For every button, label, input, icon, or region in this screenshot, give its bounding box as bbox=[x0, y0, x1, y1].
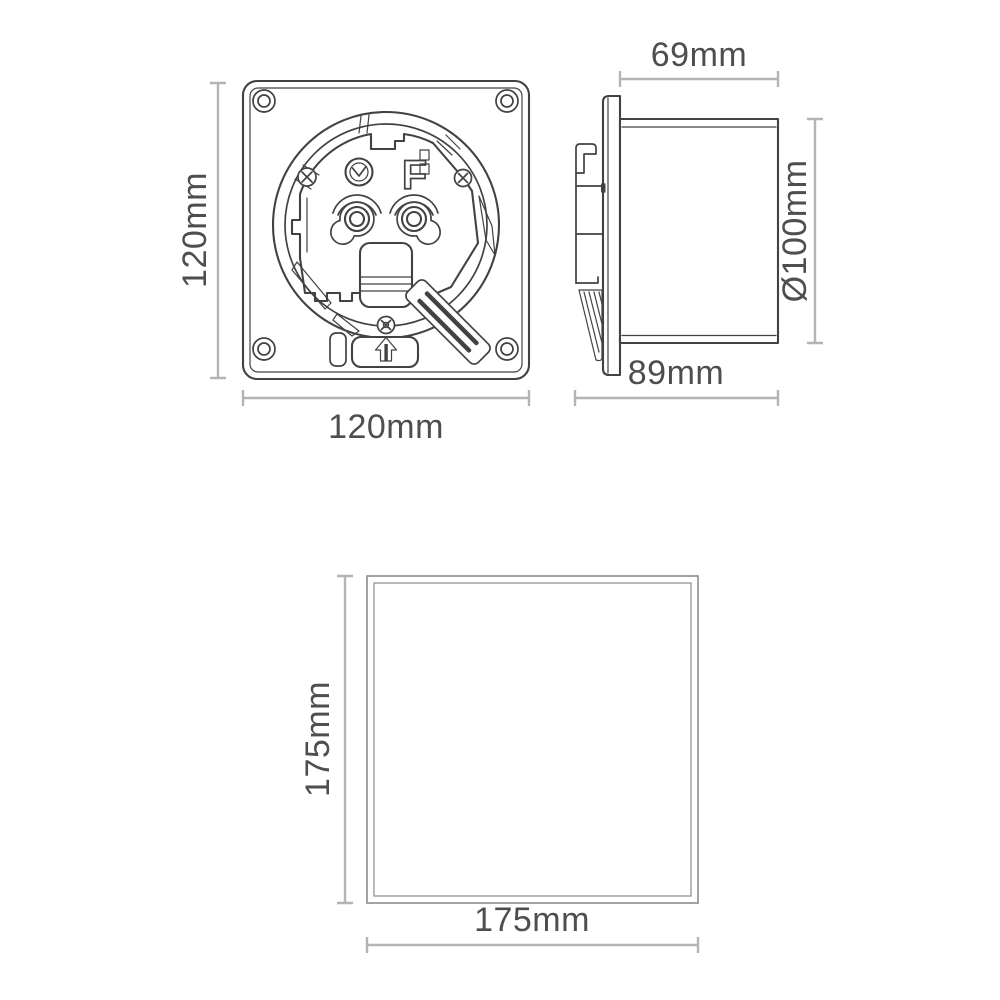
side-duct-body bbox=[620, 119, 778, 343]
cover-outer bbox=[367, 576, 698, 903]
plate-screw-right bbox=[455, 170, 472, 187]
side-diameter-dimension: Ø100mm bbox=[776, 119, 823, 343]
cover-width-dimension: 175mm bbox=[367, 901, 698, 953]
side-diameter-label: Ø100mm bbox=[776, 160, 814, 303]
cable-clamp bbox=[330, 333, 418, 367]
cover-view-drawing bbox=[367, 576, 698, 903]
front-view-drawing: F bbox=[243, 81, 529, 379]
side-depth-dimension: 69mm bbox=[620, 36, 778, 87]
front-height-label: 120mm bbox=[176, 172, 214, 288]
fan-dimension-diagram: F bbox=[0, 0, 1000, 1000]
cover-height-label: 175mm bbox=[299, 681, 337, 797]
side-body-dimension: 89mm bbox=[575, 354, 778, 406]
plate-marking-letter: F bbox=[402, 152, 427, 198]
cover-inner bbox=[374, 583, 691, 896]
cover-height-dimension: 175mm bbox=[299, 576, 353, 903]
clamp-screw bbox=[378, 317, 395, 334]
plate-screw-left bbox=[298, 168, 316, 186]
side-panel bbox=[603, 96, 620, 375]
front-width-dimension: 120mm bbox=[243, 390, 529, 446]
adjustment-screw-icon bbox=[346, 159, 373, 186]
side-body-label: 89mm bbox=[628, 354, 724, 392]
motor-mount-right bbox=[397, 202, 440, 244]
terminal-box bbox=[360, 243, 412, 307]
side-depth-label: 69mm bbox=[651, 36, 747, 74]
side-view-drawing bbox=[576, 96, 778, 375]
side-mounting-clips bbox=[576, 144, 606, 283]
cover-width-label: 175mm bbox=[474, 901, 590, 939]
motor-mount-left bbox=[331, 202, 374, 244]
front-height-dimension: 120mm bbox=[176, 83, 226, 378]
front-width-label: 120mm bbox=[328, 408, 444, 446]
side-foot bbox=[579, 290, 602, 361]
